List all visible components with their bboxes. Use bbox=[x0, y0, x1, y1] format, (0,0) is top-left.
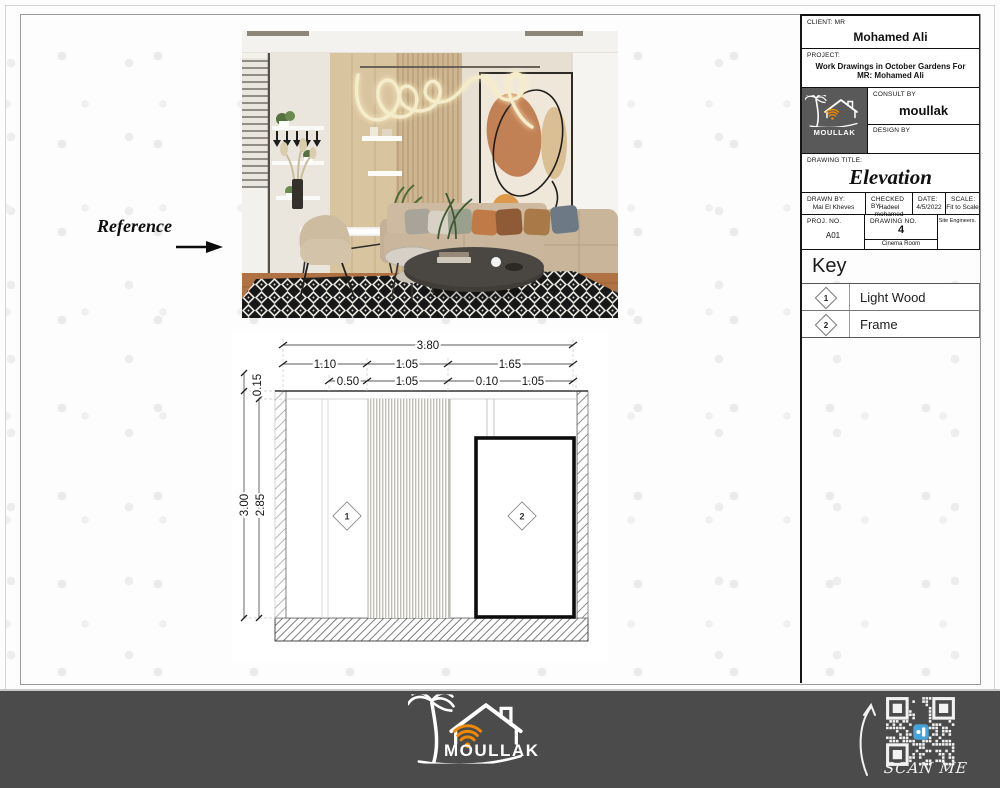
tag-diamond-icon: 2 bbox=[815, 314, 838, 337]
date-value: 4/5/2022 bbox=[913, 204, 945, 211]
project-label: PROJECT: bbox=[807, 52, 840, 59]
qr-center-icon bbox=[913, 724, 928, 739]
client-label: CLIENT: MR bbox=[807, 19, 845, 26]
svg-text:2: 2 bbox=[519, 512, 524, 522]
project-name: Work Drawings in October Gardens For MR:… bbox=[802, 62, 979, 80]
title-block: CLIENT: MR Mohamed Ali PROJECT: Work Dra… bbox=[802, 14, 980, 250]
site-engineers-label: Site Engineers. bbox=[939, 218, 976, 224]
key-label: Frame bbox=[850, 317, 898, 332]
consult-row: MOULLAK CONSULT BY moullak DESIGN BY bbox=[802, 88, 979, 154]
key-label: Light Wood bbox=[850, 290, 926, 305]
reference-photo bbox=[242, 31, 618, 318]
arrow-icon bbox=[176, 239, 224, 255]
dim-label: 1.05 bbox=[396, 376, 418, 388]
dim-label: 1.65 bbox=[499, 359, 521, 371]
consult-cell: CONSULT BY moullak bbox=[868, 88, 979, 125]
meta-row: DRAWN BY: Mai El Kheves CHECKED BY: Hade… bbox=[802, 193, 979, 215]
client-name: Mohamed Ali bbox=[802, 30, 979, 44]
consult-value: moullak bbox=[868, 103, 979, 118]
key-row-frame: 2 Frame bbox=[802, 311, 979, 337]
qr-block: SCAN ME bbox=[858, 693, 988, 788]
svg-text:1: 1 bbox=[344, 512, 349, 522]
date-label: DATE: bbox=[918, 196, 938, 203]
drawing-title-row: DRAWING TITLE: Elevation bbox=[802, 154, 979, 193]
elevation-drawing: 3.80 1.10 1.05 1.65 0.50 1.05 0.10 1.05 … bbox=[232, 333, 608, 663]
project-row: PROJECT: Work Drawings in October Garden… bbox=[802, 49, 979, 88]
dim-label: 0.10 bbox=[476, 376, 498, 388]
proj-no-value: A01 bbox=[802, 231, 864, 240]
right-wall-hatch bbox=[577, 391, 588, 618]
dim-label-vertical: 0.15 bbox=[252, 374, 264, 396]
drawing-no-value: 4 bbox=[865, 224, 937, 236]
footer-bar: MOULLAK SCAN ME bbox=[0, 691, 1000, 788]
key-heading: Key bbox=[812, 255, 846, 278]
dim-label: 1.05 bbox=[396, 359, 418, 371]
number-row: PROJ. NO. A01 DRAWING NO. 4 Cinema Room … bbox=[802, 215, 979, 250]
qr-code bbox=[884, 695, 958, 769]
drawing-title: Elevation bbox=[802, 165, 979, 190]
key-tag-cell: 2 bbox=[802, 311, 850, 337]
drawing-sheet: Reference bbox=[0, 0, 1000, 788]
abstract-art bbox=[480, 73, 573, 224]
client-row: CLIENT: MR Mohamed Ali bbox=[802, 16, 979, 49]
key-table: 1 Light Wood 2 Frame bbox=[802, 283, 980, 338]
dim-label-vertical: 2.85 bbox=[255, 494, 267, 516]
left-wall-hatch bbox=[275, 391, 286, 618]
proj-no-label: PROJ. NO. bbox=[807, 218, 841, 225]
company-logo: MOULLAK bbox=[802, 88, 868, 153]
scan-me-label: SCAN ME bbox=[883, 759, 969, 777]
key-tag-cell: 1 bbox=[802, 284, 850, 310]
curved-arrow-icon bbox=[858, 699, 880, 779]
footer-logo: MOULLAK bbox=[408, 694, 538, 784]
reference-label: Reference bbox=[97, 216, 172, 237]
drawing-room: Cinema Room bbox=[865, 241, 937, 247]
dim-label: 1.05 bbox=[522, 376, 544, 388]
dim-label: 0.50 bbox=[337, 376, 359, 388]
design-label: DESIGN BY bbox=[873, 127, 910, 134]
design-cell: DESIGN BY bbox=[868, 124, 979, 153]
dim-label-vertical: 3.00 bbox=[239, 494, 251, 516]
scale-label: SCALE: bbox=[951, 196, 975, 203]
wood-slats bbox=[368, 399, 450, 618]
key-row-light-wood: 1 Light Wood bbox=[802, 284, 979, 311]
brand-name-mini: MOULLAK bbox=[802, 128, 867, 137]
drawn-by-value: Mai El Kheves bbox=[802, 204, 865, 211]
footer-brand-name: MOULLAK bbox=[444, 741, 539, 761]
drawing-title-label: DRAWING TITLE: bbox=[807, 157, 862, 164]
scale-value: Fit to Scale bbox=[946, 204, 979, 211]
consult-label: CONSULT BY bbox=[873, 91, 916, 98]
drawn-by-label: DRAWN BY: bbox=[807, 196, 845, 203]
tag-diamond-icon: 1 bbox=[815, 287, 838, 310]
dim-label: 1.10 bbox=[314, 359, 336, 371]
floor-hatch bbox=[275, 618, 588, 641]
moullak-logo-icon bbox=[805, 94, 865, 128]
dim-total: 3.80 bbox=[417, 340, 439, 352]
